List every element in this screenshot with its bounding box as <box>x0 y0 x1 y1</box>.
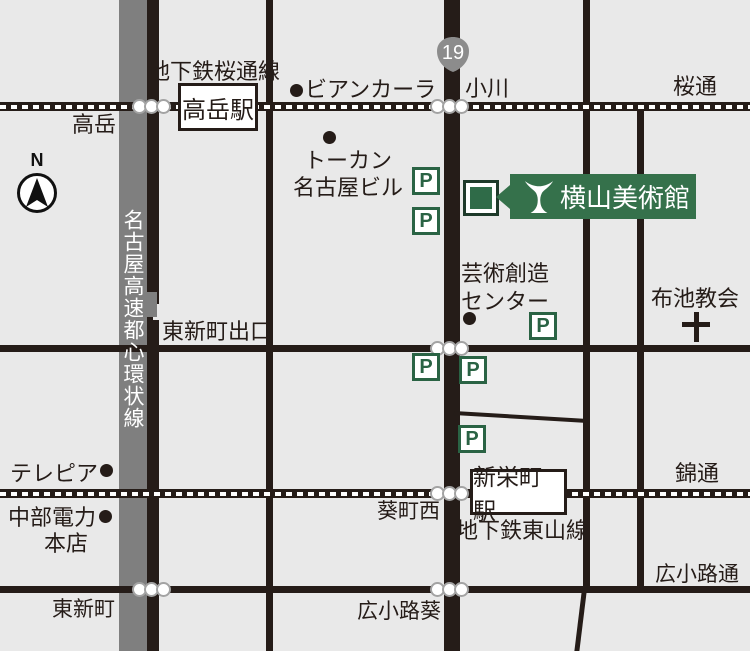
poi-dot-tokan <box>323 131 336 144</box>
church-cross-icon <box>682 322 710 327</box>
parking-icon: P <box>459 356 487 384</box>
poi-dot-chubu <box>99 510 112 523</box>
crossing-marker-hirokojiaoi <box>430 582 469 597</box>
road-diagonal-bottom <box>574 589 587 651</box>
label-aoichonishi: 葵町西 <box>377 500 440 523</box>
parking-icon: P <box>529 312 557 340</box>
label-geijutsu-line1: 芸術創造 <box>461 260 549 288</box>
parking-icon: P <box>412 167 440 195</box>
route-number: 19 <box>434 41 472 65</box>
label-nunoike-church: 布池教会 <box>651 287 739 311</box>
museum-banner: 横山美術館 <box>510 174 696 219</box>
road-vertical-4 <box>583 0 590 590</box>
road-vertical-expressway-side <box>147 0 159 651</box>
museum-marker <box>466 183 496 213</box>
exit-ramp <box>143 292 157 317</box>
museum-logo-icon <box>524 179 554 215</box>
station-box-takaoka: 高岳駅 <box>178 83 258 131</box>
road-horizontal-2 <box>0 345 750 352</box>
compass-north-label: N <box>17 150 57 170</box>
label-takaoka: 高岳 <box>72 113 116 137</box>
label-tokan-line2: 名古屋ビル <box>289 174 407 201</box>
road-route19 <box>444 0 460 651</box>
church-cross-icon <box>694 312 699 342</box>
road-diagonal-mid <box>454 411 588 423</box>
compass <box>17 173 57 213</box>
railway-dashes <box>0 105 750 109</box>
label-higashishincho: 東新町 <box>52 598 115 621</box>
label-higashishincho-exit: 東新町出口 <box>162 320 272 344</box>
label-chubu-electric: 中部電力 <box>8 506 96 530</box>
access-map: 名古屋高速都心環状線 19 N 高岳駅 新栄町駅 P P P P P P <box>0 0 750 651</box>
crossing-marker-shinsakaemachi <box>430 486 469 501</box>
poi-dot-telepia <box>100 464 113 477</box>
label-biancara: ビアンカーラ <box>305 78 436 102</box>
label-hirokojiaoi: 広小路葵 <box>357 600 441 623</box>
label-geijutsu-center: 芸術創造 センター <box>461 260 549 316</box>
parking-icon: P <box>412 207 440 235</box>
banner-pointer <box>496 185 510 209</box>
railway-sakuradori-line <box>0 102 750 111</box>
label-tokan-line1: トーカン <box>289 147 407 174</box>
parking-icon: P <box>412 353 440 381</box>
station-name: 高岳駅 <box>182 90 254 125</box>
expressway-name: 名古屋高速都心環状線 <box>119 201 147 437</box>
label-nishikidori: 錦通 <box>675 462 719 486</box>
crossing-marker-higashishincho <box>132 582 171 597</box>
poi-dot-biancara <box>290 84 303 97</box>
railway-dashes <box>0 492 750 496</box>
crossing-marker-takaoka <box>132 99 171 114</box>
north-arrow-icon <box>20 176 54 210</box>
railway-higashiyama-line <box>0 489 750 498</box>
station-name: 新栄町駅 <box>473 458 564 526</box>
museum-title: 横山美術館 <box>560 178 690 215</box>
label-chubu-honten: 本店 <box>44 532 88 556</box>
label-sakuradori-line: 地下鉄桜通線 <box>148 60 280 84</box>
label-ogawa: 小川 <box>465 77 509 101</box>
label-sakuradori: 桜通 <box>673 75 717 99</box>
label-telepia: テレピア <box>10 462 98 486</box>
road-hirokoji-dori <box>0 586 750 593</box>
station-box-shinsakaemachi: 新栄町駅 <box>470 469 567 515</box>
label-tokan-building: トーカン 名古屋ビル <box>289 147 407 201</box>
label-hirokojidori: 広小路通 <box>655 563 739 586</box>
parking-icon: P <box>458 425 486 453</box>
crossing-marker-ogawa <box>430 99 469 114</box>
